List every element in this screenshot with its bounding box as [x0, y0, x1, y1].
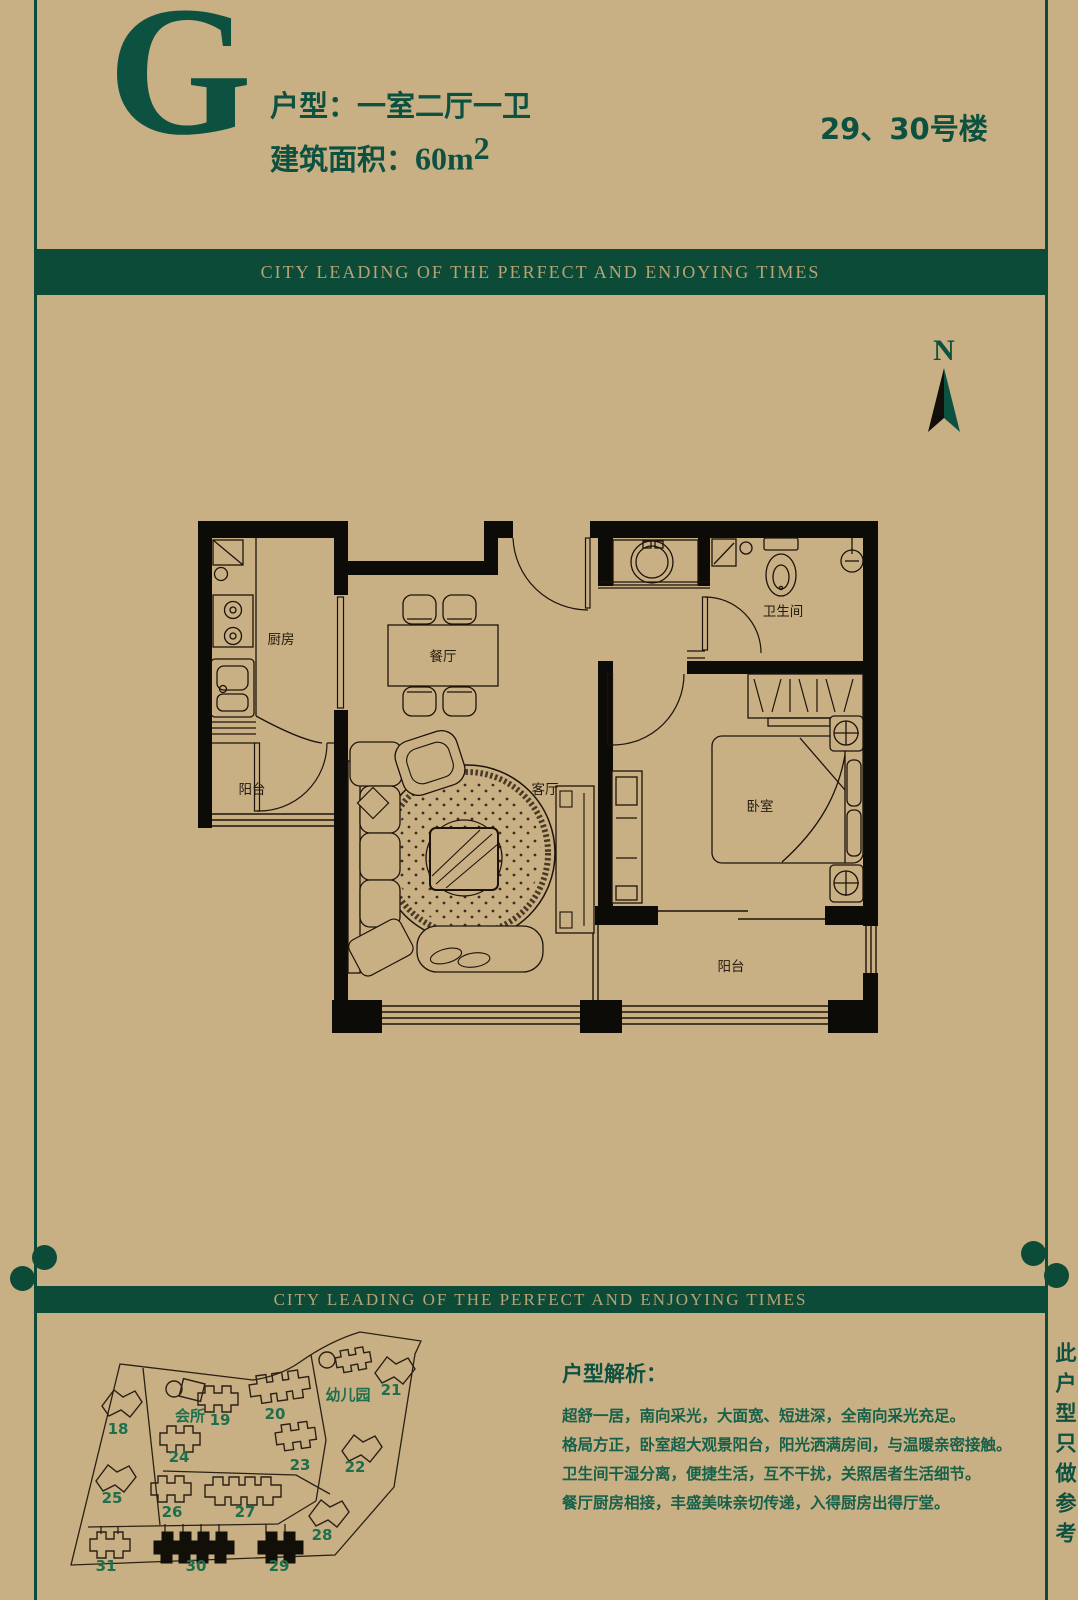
label-18: 18: [108, 1420, 129, 1438]
left-frame-line: [34, 0, 37, 1600]
analysis-title: 户型解析：: [562, 1358, 1022, 1388]
label-23: 23: [290, 1456, 311, 1474]
kindergarten-label: 幼儿园: [325, 1386, 370, 1404]
bedroom-furniture: [612, 674, 863, 903]
label-19: 19: [210, 1411, 231, 1429]
bathroom-fixtures: [598, 538, 863, 596]
unit-letter: G: [108, 0, 252, 174]
building-28: [309, 1500, 349, 1527]
label-24: 24: [169, 1448, 190, 1466]
corner-dot: [32, 1245, 57, 1270]
bottom-banner: CITY LEADING OF THE PERFECT AND ENJOYING…: [36, 1286, 1045, 1313]
kindergarten-circle: [319, 1352, 335, 1368]
living-room-furniture: [346, 726, 594, 978]
floor-drain: [740, 542, 752, 554]
label-28: 28: [312, 1526, 333, 1544]
building-23: [274, 1420, 317, 1451]
bathroom-door-arc: [705, 597, 761, 653]
kitchen-fixtures: [211, 538, 322, 743]
north-arrow-icon: [916, 366, 972, 434]
toilet-tank: [764, 538, 798, 550]
balcony-south-label: 阳台: [718, 959, 745, 975]
sofa-corner: [350, 742, 402, 786]
balcony-north-label: 阳台: [239, 782, 266, 798]
building-25: [96, 1465, 136, 1492]
label-30: 30: [186, 1557, 207, 1575]
entrance-door-arc: [513, 538, 588, 610]
brochure-page: G 户型：一室二厅一卫 建筑面积：60m2 29、30号楼 CITY LEADI…: [0, 0, 1078, 1600]
corner-dot: [10, 1266, 35, 1291]
kitchen-balcony-door-arc: [257, 743, 327, 811]
kitchen-sliding-door: [338, 597, 344, 708]
right-frame-line: [1045, 0, 1048, 1600]
clubhouse-building: [179, 1379, 205, 1402]
label-20: 20: [265, 1405, 286, 1423]
analysis-line: 格局方正，卧室超大观景阳台，阳光洒满房间，与温暖亲密接触。: [562, 1431, 1022, 1460]
compass-north-label: N: [916, 336, 972, 366]
doors: [212, 538, 761, 811]
corner-dot: [1021, 1241, 1046, 1266]
bathroom-label: 卫生间: [763, 604, 804, 620]
unit-analysis: 户型解析： 超舒一居，南向采光，大面宽、短进深，全南向采光充足。 格局方正，卧室…: [562, 1358, 1022, 1518]
kindergarten-building: [334, 1346, 372, 1374]
analysis-line: 超舒一居，南向采光，大面宽、短进深，全南向采光充足。: [562, 1402, 1022, 1431]
unit-titles: 户型：一室二厅一卫 建筑面积：60m2: [270, 86, 531, 181]
site-map-roads: [71, 1332, 421, 1565]
area-line: 建筑面积：60m2: [270, 126, 531, 181]
compass: N: [916, 336, 972, 438]
site-map-labels: 18 19 20 21 22 23 24 25 26 27 28 29 30 3…: [96, 1381, 402, 1575]
label-21: 21: [381, 1381, 402, 1399]
site-boundary: [71, 1332, 421, 1565]
label-27: 27: [235, 1503, 256, 1521]
building-20: [248, 1369, 311, 1405]
kitchen-label: 厨房: [268, 632, 295, 648]
building-31: [90, 1532, 130, 1558]
label-29: 29: [269, 1557, 290, 1575]
tv-cabinet: [556, 786, 594, 933]
bedroom-label: 卧室: [747, 798, 774, 815]
building-27: [205, 1477, 281, 1505]
label-22: 22: [345, 1458, 366, 1476]
clubhouse-label: 会所: [175, 1407, 205, 1425]
floor-plan: 厨房 餐厅 客厅 卫生间 卧室 阳台 阳台: [190, 503, 890, 1043]
top-banner: CITY LEADING OF THE PERFECT AND ENJOYING…: [36, 249, 1045, 295]
label-31: 31: [96, 1557, 117, 1575]
analysis-line: 餐厅厨房相接，丰盛美味亲切传递，入得厨房出得厅堂。: [562, 1489, 1022, 1518]
unit-type-line: 户型：一室二厅一卫: [270, 86, 531, 126]
analysis-line: 卫生间干湿分离，便捷生活，互不干扰，关照居者生活细节。: [562, 1460, 1022, 1489]
washbasin: [631, 541, 673, 583]
side-note: 此户型只做参考: [1050, 1342, 1078, 1552]
bedroom-door-arc: [613, 674, 684, 745]
wardrobe: [748, 674, 863, 718]
bed: [712, 736, 863, 863]
site-map: 18 19 20 21 22 23 24 25 26 27 28 29 30 3…: [58, 1322, 442, 1588]
dining-label: 餐厅: [430, 649, 457, 665]
area-value: 60: [415, 141, 447, 177]
building-21: [375, 1357, 415, 1384]
corner-dot: [1044, 1263, 1069, 1288]
living-label: 客厅: [532, 781, 559, 798]
building-number: 29、30号楼: [820, 106, 988, 148]
label-26: 26: [162, 1503, 183, 1521]
sofa-seat: [360, 833, 400, 880]
label-25: 25: [102, 1489, 123, 1507]
